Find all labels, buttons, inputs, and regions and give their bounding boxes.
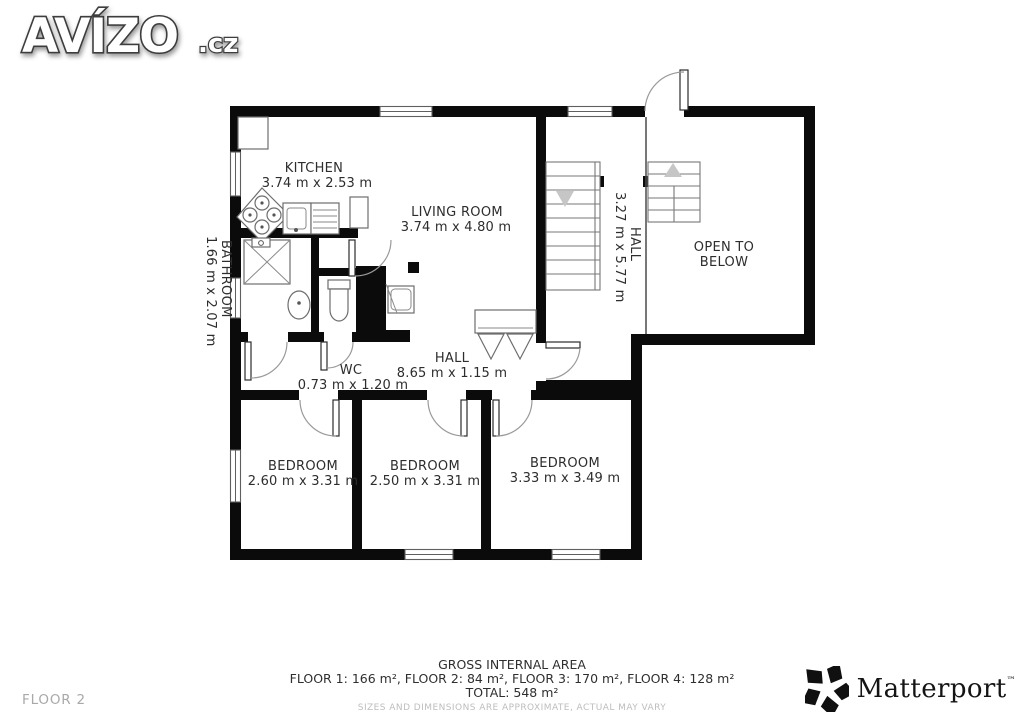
bathroom-dims: 1.66 m x 2.07 m: [203, 236, 218, 346]
open-to-below-line1: OPEN TO: [694, 240, 754, 255]
bedroom3-dims: 3.33 m x 3.49 m: [510, 471, 620, 486]
kitchen-drawers: [311, 203, 339, 234]
bedroom2-door: [428, 400, 467, 436]
living-room-label: LIVING ROOM: [411, 205, 503, 220]
wc-label: WC: [340, 363, 363, 378]
window: [231, 450, 241, 502]
bathroom-fixtures: [244, 238, 310, 319]
window: [568, 107, 612, 117]
utility-fixtures: [386, 284, 414, 313]
toilet-tank: [328, 280, 350, 289]
bedroom1-label: BEDROOM: [268, 459, 338, 474]
toilet: [330, 289, 348, 321]
matterport-pinwheel-icon: [805, 666, 849, 712]
hall2-dims: 3.27 m x 5.77 m: [612, 192, 627, 302]
window: [380, 107, 432, 117]
bedroom2-label: BEDROOM: [390, 459, 460, 474]
hall-label: HALL: [435, 351, 470, 366]
trademark-symbol: ™: [1007, 676, 1016, 686]
matterport-wordmark: Matterport™: [857, 674, 1016, 704]
floorplan-drawing: KITCHEN 3.74 m x 2.53 m LIVING ROOM 3.74…: [0, 0, 1024, 724]
bedroom3-label: BEDROOM: [530, 456, 600, 471]
staircase-down: [546, 162, 600, 290]
bedroom2-dims: 2.50 m x 3.31 m: [370, 474, 480, 489]
avizo-logo: AVÍZO .cz: [16, 2, 296, 78]
washbasin: [288, 291, 310, 319]
wc-dims: 0.73 m x 1.20 m: [298, 378, 408, 393]
kitchen-label: KITCHEN: [285, 161, 343, 176]
entrance-door: [645, 70, 688, 117]
hall2-label: HALL: [627, 227, 642, 262]
floorplan-page: KITCHEN 3.74 m x 2.53 m LIVING ROOM 3.74…: [0, 0, 1024, 724]
living-room-dims: 3.74 m x 4.80 m: [401, 220, 511, 235]
kitchen-cabinet: [238, 117, 268, 149]
staircase-up: [646, 117, 700, 334]
hall-closet: [475, 310, 536, 359]
wc-fixtures: [328, 280, 350, 321]
shaft: [356, 266, 386, 342]
kitchen-counter: [350, 197, 368, 228]
bedroom1-dims: 2.60 m x 3.31 m: [248, 474, 358, 489]
matterport-watermark: Matterport™: [805, 666, 1016, 712]
bedroom1-door: [300, 400, 339, 436]
column-marker: [408, 262, 419, 273]
hall-dims: 8.65 m x 1.15 m: [397, 366, 507, 381]
floor-label: FLOOR 2: [22, 692, 86, 708]
hall-door: [546, 342, 580, 379]
window: [552, 550, 600, 560]
bathroom-door: [245, 342, 287, 380]
window: [231, 152, 241, 196]
window: [405, 550, 453, 560]
kitchen-dims: 3.74 m x 2.53 m: [262, 176, 372, 191]
avizo-wordmark: AVÍZO: [22, 9, 178, 64]
bedroom3-door: [493, 400, 532, 436]
avizo-tld: .cz: [198, 29, 238, 59]
bathroom-label: BATHROOM: [218, 240, 233, 318]
open-to-below-line2: BELOW: [700, 255, 749, 270]
